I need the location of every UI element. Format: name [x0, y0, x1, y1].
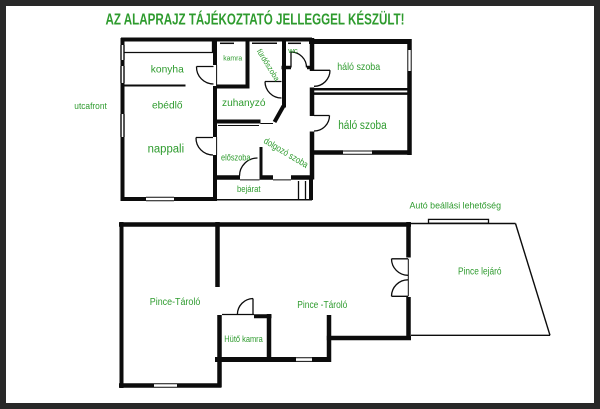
- svg-text:utcafront: utcafront: [74, 101, 107, 111]
- svg-text:konyha: konyha: [151, 63, 184, 75]
- svg-text:Autó beállási lehetőség: Autó beállási lehetőség: [410, 200, 502, 211]
- svg-text:előszoba: előszoba: [221, 152, 251, 163]
- svg-text:bejárat: bejárat: [237, 184, 261, 195]
- svg-text:kamra: kamra: [223, 54, 243, 63]
- svg-text:Hütő kamra: Hütő kamra: [224, 334, 263, 345]
- svg-text:wc: wc: [287, 46, 298, 55]
- svg-text:ebédlő: ebédlő: [152, 99, 183, 111]
- svg-text:zuhanyzó: zuhanyzó: [222, 97, 266, 109]
- svg-text:Pince-Tároló: Pince-Tároló: [150, 297, 201, 308]
- svg-text:Pince -Tároló: Pince -Tároló: [297, 300, 347, 311]
- svg-text:Pince lejáró: Pince lejáró: [458, 266, 502, 277]
- svg-text:háló szoba: háló szoba: [337, 61, 380, 73]
- svg-text:AZ ALAPRAJZ TÁJÉKOZTATÓ JELLEG: AZ ALAPRAJZ TÁJÉKOZTATÓ JELLEGGEL KÉSZÜL…: [106, 11, 405, 29]
- svg-text:nappali: nappali: [148, 143, 185, 155]
- svg-text:háló szoba: háló szoba: [338, 120, 387, 132]
